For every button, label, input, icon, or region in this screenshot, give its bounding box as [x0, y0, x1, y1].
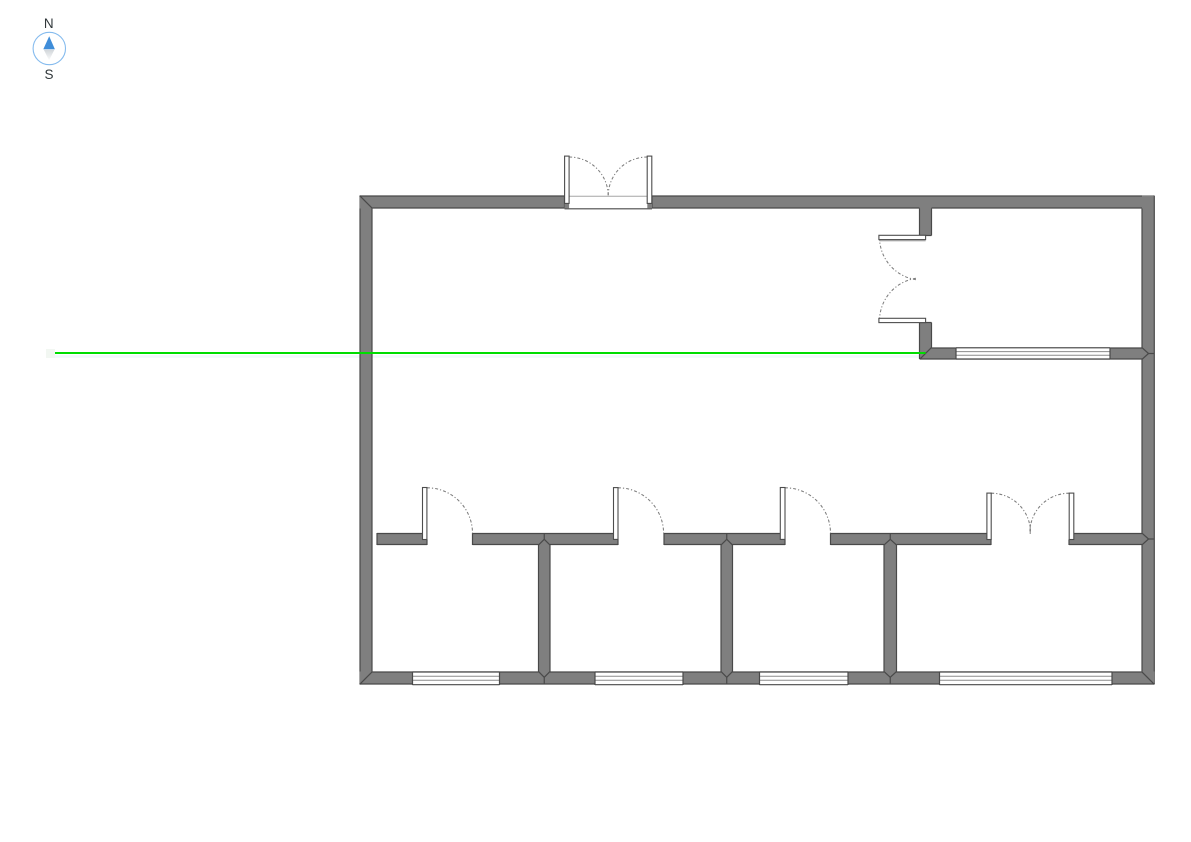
svg-text:S: S: [44, 67, 53, 82]
svg-text:N: N: [44, 16, 54, 31]
